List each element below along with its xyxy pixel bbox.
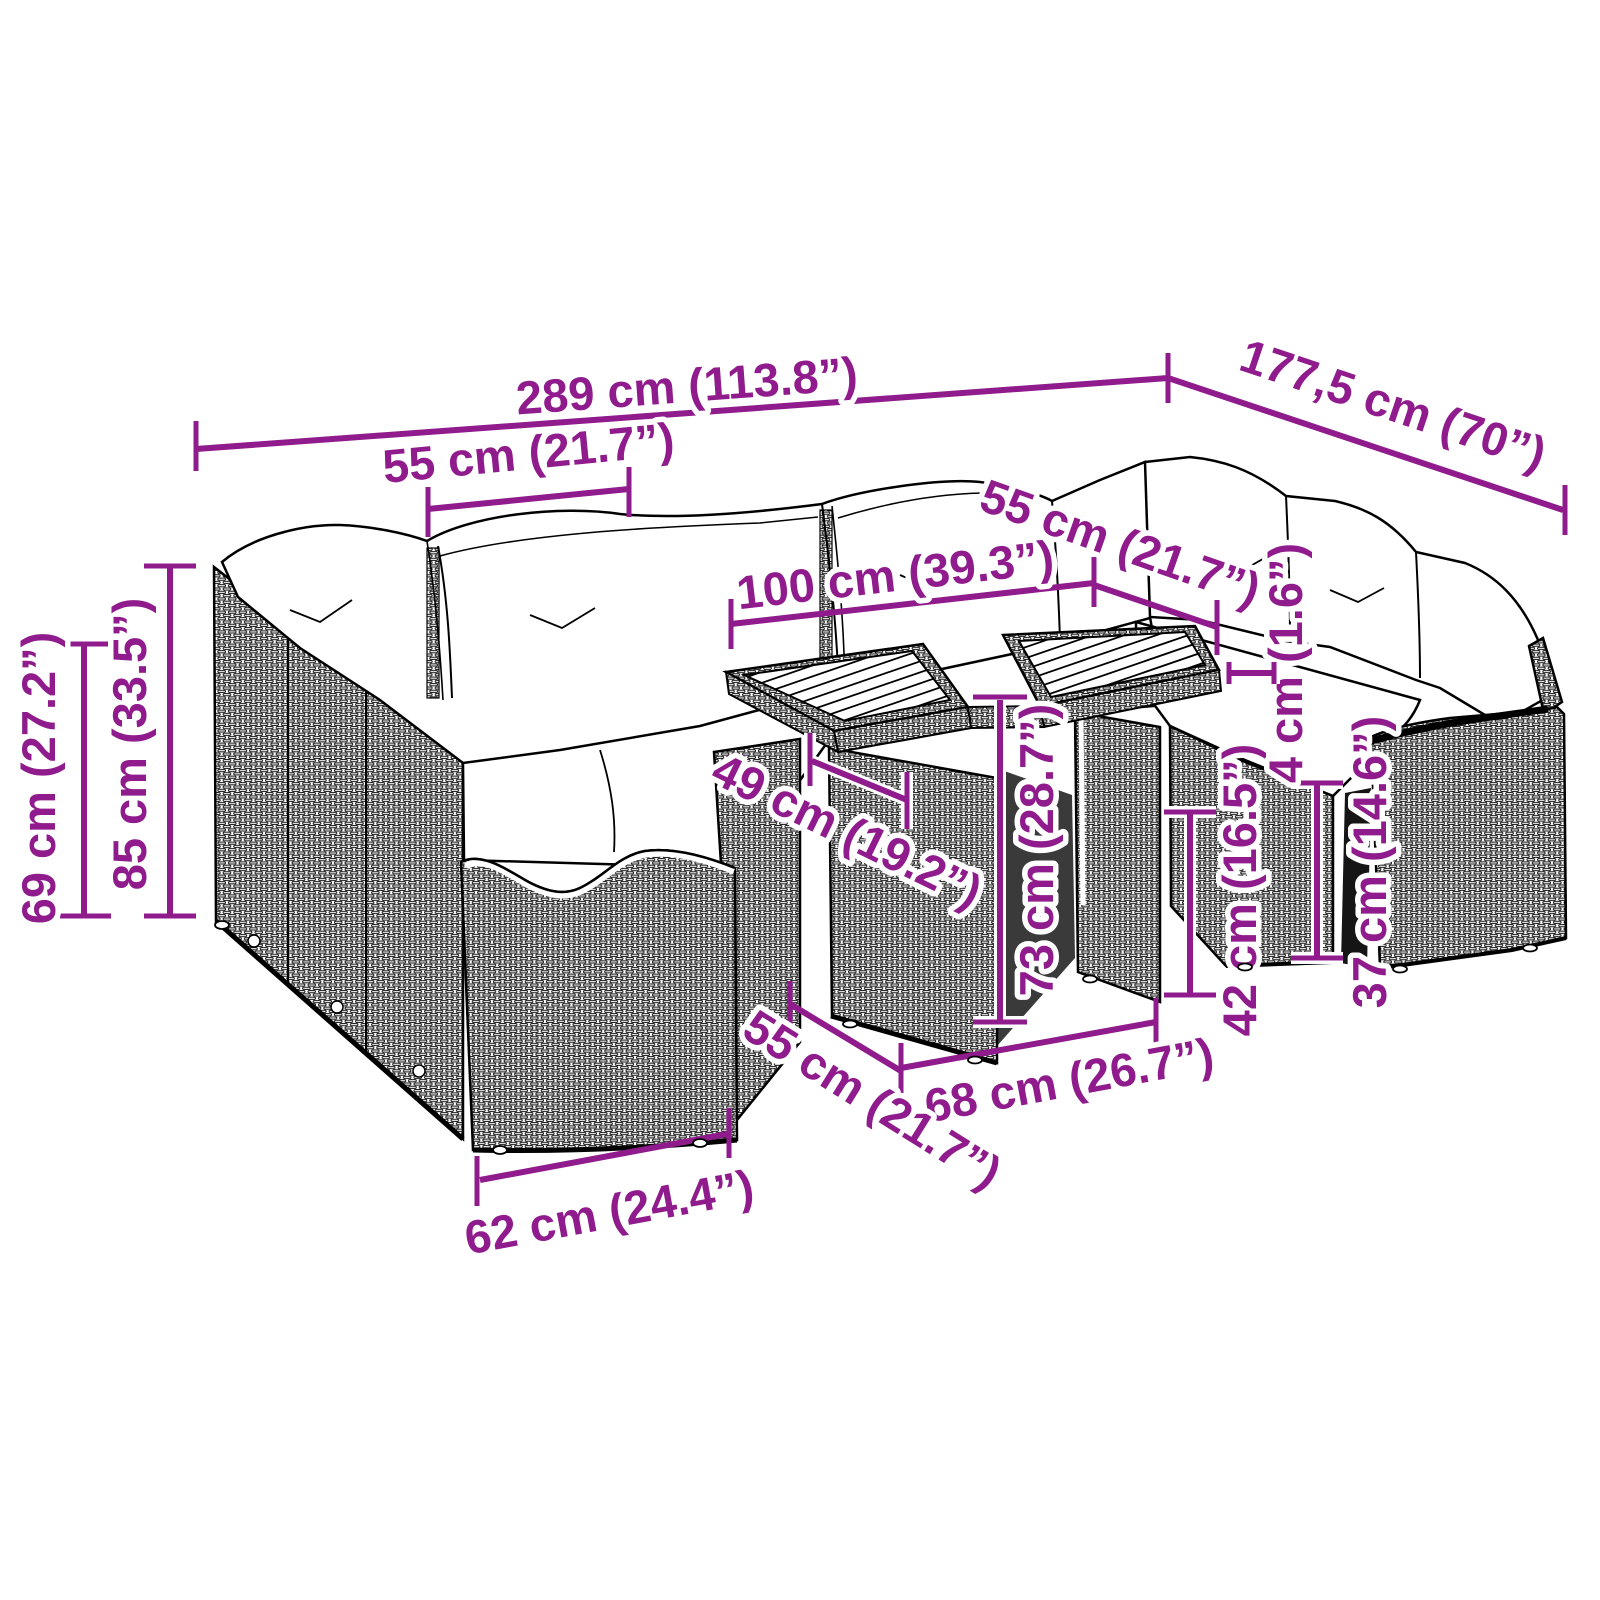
svg-text:4 cm (1.6”): 4 cm (1.6”) xyxy=(1259,543,1312,783)
svg-text:69 cm (27.2”): 69 cm (27.2”) xyxy=(12,632,65,925)
svg-text:37 cm (14.6”): 37 cm (14.6”) xyxy=(1343,716,1396,1009)
svg-text:42 cm (16.5”): 42 cm (16.5”) xyxy=(1213,744,1266,1037)
svg-text:85 cm (33.5”): 85 cm (33.5”) xyxy=(103,598,156,891)
svg-text:73 cm (28.7”): 73 cm (28.7”) xyxy=(1010,704,1063,997)
